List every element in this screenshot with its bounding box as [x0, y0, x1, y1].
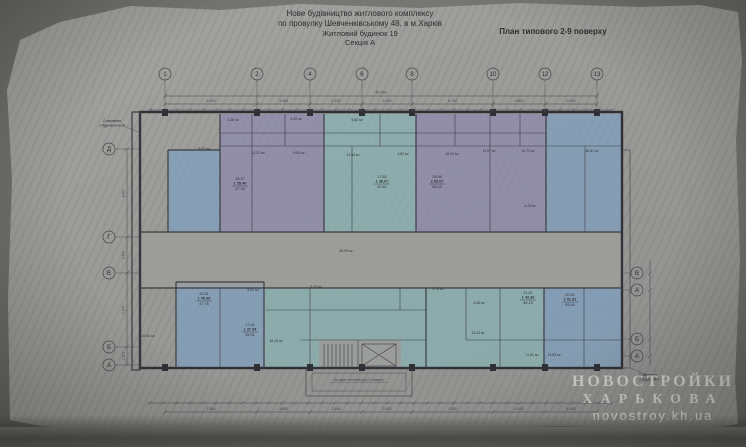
svg-text:13: 13 [594, 71, 601, 78]
room-area-label: 11.54 м² [346, 153, 360, 157]
svg-text:6: 6 [360, 71, 364, 78]
svg-text:А: А [635, 353, 640, 360]
room-area-label: 4.73 м² [432, 287, 444, 291]
svg-text:10: 10 [490, 71, 497, 78]
room-area-label: 5.91 м² [247, 288, 259, 292]
svg-text:4: 4 [308, 71, 312, 78]
svg-text:3.150: 3.150 [332, 99, 341, 103]
room-area-label: 5.23 м² [310, 285, 322, 289]
scanned-sheet: Нове будівництво житлового комплексу по … [0, 0, 746, 447]
svg-text:5.700: 5.700 [448, 99, 457, 103]
svg-text:1 38.07: 1 38.07 [376, 180, 389, 184]
room-area-label: 16.81 м² [585, 149, 599, 153]
apartment-unit-blue [546, 114, 622, 232]
svg-text:Б: Б [635, 336, 639, 343]
room-area-label: 4.23 м² [524, 204, 536, 208]
svg-text:Д: Д [107, 146, 112, 153]
svg-text:29.98: 29.98 [432, 175, 442, 179]
svg-text:В: В [635, 270, 639, 277]
svg-text:21.41: 21.41 [523, 291, 533, 295]
svg-text:7.500: 7.500 [207, 407, 216, 411]
apartment-unit-purple [416, 114, 546, 232]
room-area-label: 3.82 м² [397, 152, 409, 156]
svg-text:1 51.81: 1 51.81 [564, 298, 577, 302]
room-area-label: 4.28 м² [227, 118, 239, 122]
svg-text:8: 8 [410, 71, 414, 78]
svg-text:29.31: 29.31 [245, 333, 255, 337]
svg-text:15.27: 15.27 [235, 177, 245, 181]
svg-text:1 45.38: 1 45.38 [198, 297, 211, 301]
svg-text:Стикування: Стикування [103, 119, 122, 123]
svg-text:1: 1 [163, 71, 167, 78]
svg-text:3.600: 3.600 [515, 99, 524, 103]
svg-text:17.82: 17.82 [377, 175, 387, 179]
svg-text:7.300: 7.300 [122, 306, 126, 315]
svg-text:4.300: 4.300 [448, 407, 457, 411]
svg-text:20.52: 20.52 [565, 293, 575, 297]
svg-text:20.01: 20.01 [199, 292, 209, 296]
svg-text:1 35.40: 1 35.40 [234, 182, 247, 186]
watermark-line-2: ХАРЬКОВА [570, 391, 736, 408]
svg-text:2.400: 2.400 [332, 407, 341, 411]
svg-text:3.150: 3.150 [279, 99, 288, 103]
room-area-label: 13.22 м² [251, 151, 265, 155]
room-area-label: 5.82 м² [351, 118, 363, 122]
svg-text:2: 2 [255, 71, 259, 78]
watermark-line-1: НОВОСТРОЙКИ [570, 372, 736, 391]
canopy-note: Козирок типовий для 2 поверху [334, 378, 384, 382]
svg-text:47.76: 47.76 [199, 302, 209, 306]
svg-text:40.81: 40.81 [377, 185, 387, 189]
svg-text:12: 12 [542, 71, 549, 78]
svg-text:3.600: 3.600 [279, 407, 288, 411]
apartment-unit-blue [168, 150, 220, 232]
svg-text:56.16: 56.16 [432, 185, 442, 189]
svg-text:46.19: 46.19 [523, 301, 533, 305]
svg-text:40.500: 40.500 [375, 91, 387, 95]
room-area-label: 13.53 м² [547, 353, 561, 357]
room-area-label: 11.07 м² [482, 149, 496, 153]
svg-text:1 43.36: 1 43.36 [522, 296, 535, 300]
apartment-unit-teal [324, 114, 416, 232]
svg-text:2.400: 2.400 [383, 407, 392, 411]
svg-text:Б: Б [107, 344, 111, 351]
apartment-fills [141, 114, 624, 369]
room-area-label: 60.09 м² [339, 249, 353, 253]
svg-text:37.26: 37.26 [235, 187, 245, 191]
svg-text:А: А [635, 287, 640, 294]
scan-edge-strip [0, 427, 746, 447]
room-area-label: 8.57 м² [198, 147, 210, 151]
svg-text:В: В [107, 270, 111, 277]
svg-text:53.44: 53.44 [565, 303, 575, 307]
room-area-label: 11.24 м² [471, 331, 485, 335]
svg-text:Г: Г [107, 234, 111, 241]
svg-text:3.150: 3.150 [383, 99, 392, 103]
room-area-label: 10.01 м² [141, 334, 155, 338]
room-area-label: 4.29 м² [290, 117, 302, 121]
room-area-label: 9.05 м² [293, 151, 305, 155]
svg-text:1.800: 1.800 [122, 352, 126, 361]
room-area-label: 11.61 м² [525, 353, 539, 357]
svg-text:3.600: 3.600 [122, 251, 126, 260]
svg-text:3.000: 3.000 [567, 99, 576, 103]
svg-text:4.100: 4.100 [515, 407, 524, 411]
room-area-label: 10.01 м² [445, 152, 459, 156]
svg-text:6.300: 6.300 [207, 99, 216, 103]
room-area-label: 16.13 м² [269, 339, 283, 343]
room-area-label: 12.73 м² [521, 149, 535, 153]
svg-text:17.41: 17.41 [245, 323, 255, 327]
apartment-unit-purple [220, 114, 324, 232]
svg-text:8.800: 8.800 [122, 189, 126, 198]
svg-text:А: А [107, 362, 112, 369]
svg-text:1 27.34: 1 27.34 [244, 328, 258, 332]
svg-text:з будинком №18: з будинком №18 [99, 123, 125, 127]
svg-text:2 53.67: 2 53.67 [431, 180, 444, 184]
room-area-label: 4.06 м² [473, 301, 485, 305]
